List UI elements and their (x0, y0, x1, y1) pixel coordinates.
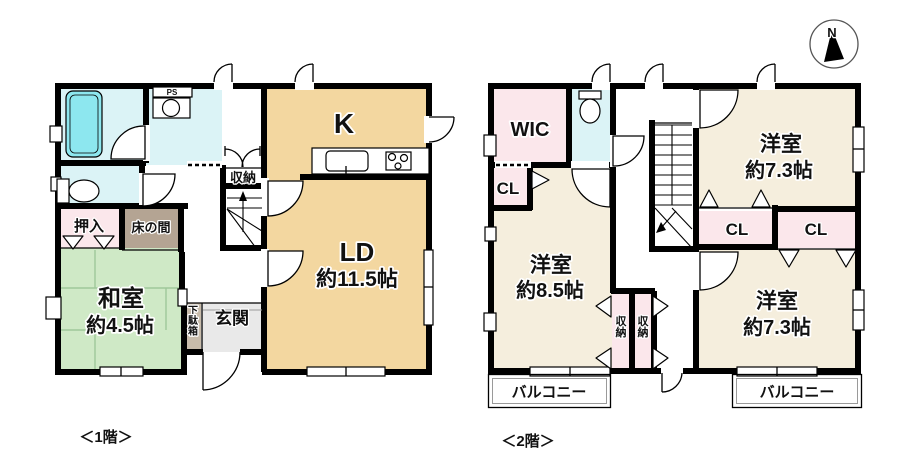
stairs-up-arrow (239, 191, 247, 201)
toilet2f-tank (579, 91, 601, 99)
stove-burner-3 (395, 163, 401, 169)
label-bedroom85: 洋室 (530, 253, 572, 277)
bedroom73n-top-window-gap (757, 81, 775, 90)
label-washitsu: 和室 (98, 285, 144, 311)
hall2f-top-window-gap (645, 81, 663, 90)
label-storage-east: 収納 (638, 315, 650, 339)
kitchen-backdoor (295, 64, 313, 82)
stove-burner-1 (389, 154, 396, 161)
label-bedroom73n-size: 約7.3帖 (745, 158, 813, 182)
bedroom85-door-gap (571, 161, 609, 169)
label-bedroom73s-size: 約7.3帖 (743, 315, 811, 339)
vanity-sink-bowl (163, 100, 180, 117)
stove-burner-2 (401, 155, 408, 162)
corridor-south-door-gap (661, 367, 683, 378)
room-toilet1f-fill (58, 163, 142, 206)
bedroom73n-top-window (757, 64, 775, 82)
label-wic: WIC (511, 119, 550, 141)
kitchen-sink (326, 151, 368, 171)
floor-plan-svg: N K LD 約11.5帖 和室 約4.5帖 押入 床の間 収納 玄関 下駄箱 … (0, 0, 903, 469)
caption-floor2: ＜2階＞ (501, 432, 554, 450)
bedroom85-window-1 (485, 227, 496, 241)
label-tokonoma: 床の間 (131, 220, 170, 235)
label-cl-west: CL (497, 179, 520, 198)
storage-east-door-mark-2 (653, 348, 668, 369)
label-genkan: 玄関 (215, 308, 249, 328)
label-balcony-east: バルコニー (760, 384, 835, 401)
bathtub (66, 91, 102, 157)
caption-floor1: ＜1階＞ (79, 428, 132, 446)
label-ps: PS (167, 88, 178, 97)
toilet1f-bowl (69, 180, 99, 202)
label-cl-east: CL (805, 220, 828, 239)
label-cl-center: CL (726, 220, 749, 239)
label-bedroom73s: 洋室 (756, 289, 798, 313)
storage1f-double-doors (225, 146, 260, 167)
label-balcony-west: バルコニー (512, 384, 587, 401)
toilet2f-bowl (580, 99, 600, 123)
storage-east-door-mark-1 (653, 296, 668, 317)
bedroom85-window-2 (484, 313, 496, 331)
label-oshiire: 押入 (74, 217, 104, 235)
label-storage1f: 収納 (230, 170, 256, 185)
toilet1f-door (143, 174, 175, 206)
label-storage-west: 収納 (616, 315, 628, 339)
entrance-recess-cutout (187, 365, 262, 379)
kitchen-east-door-gap (424, 116, 433, 143)
toilet2f-door (613, 136, 644, 166)
washroom-backdoor-gap (214, 81, 233, 90)
stairs-floor1 (227, 191, 262, 248)
label-ld: LD (340, 237, 375, 267)
bedroom73n-door-gap (692, 90, 700, 128)
label-washitsu-size: 約4.5帖 (86, 313, 154, 337)
compass-n-label: N (827, 25, 836, 40)
washitsu-sliding-door (178, 289, 187, 306)
washitsu-side-window (46, 297, 61, 319)
compass-icon: N (810, 20, 858, 68)
toilet1f-tank (57, 179, 69, 203)
label-bedroom85-size: 約8.5帖 (516, 278, 584, 302)
washroom-backdoor (214, 64, 232, 82)
bedroom73s-door-gap (692, 252, 700, 290)
hall2f-top-window (645, 64, 663, 82)
toilet2f-top-vent (592, 64, 610, 82)
floor-plan-canvas: N K LD 約11.5帖 和室 約4.5帖 押入 床の間 収納 玄関 下駄箱 … (0, 0, 903, 469)
wic-window (484, 135, 496, 156)
label-bedroom73n: 洋室 (760, 132, 802, 156)
label-ld-size: 約11.5帖 (316, 267, 398, 291)
label-getabako: 下駄箱 (188, 305, 199, 337)
bathroom-window (50, 126, 62, 142)
label-kitchen: K (334, 108, 354, 139)
stairs-floor2 (655, 125, 692, 248)
toilet2f-top-vent-gap (592, 81, 610, 90)
kitchen-backdoor-gap (295, 81, 314, 90)
